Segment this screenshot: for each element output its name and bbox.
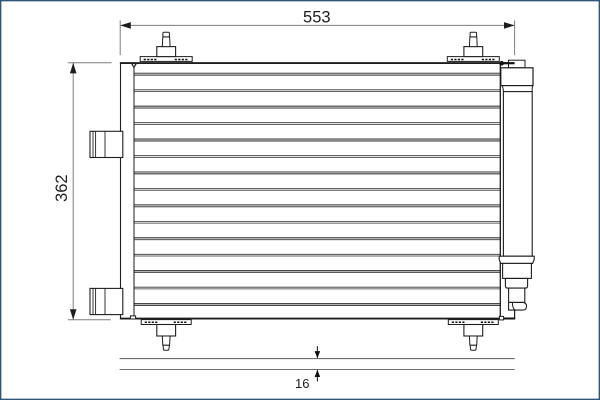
svg-text:553: 553 [303,9,331,27]
svg-text:16: 16 [295,376,309,391]
svg-text:362: 362 [53,174,71,202]
